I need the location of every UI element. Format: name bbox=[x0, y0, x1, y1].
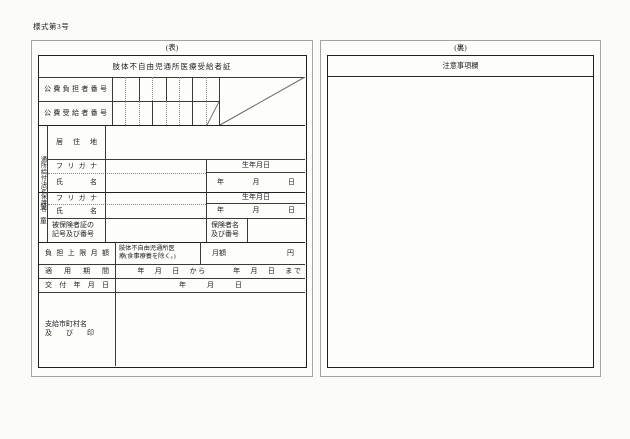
digit-cell bbox=[152, 101, 165, 125]
payer-number-label-text: 公費負担者番号 bbox=[44, 85, 107, 94]
address-label-text: 居住地 bbox=[56, 138, 97, 147]
back-side-label: (裏) bbox=[321, 42, 600, 53]
insurer-label: 保険者名 及び番号 bbox=[206, 218, 248, 242]
child-furigana-input-area bbox=[106, 192, 206, 204]
payer-number-label: 公費負担者番号 bbox=[39, 77, 113, 101]
guardian-furigana-label: フリガナ bbox=[48, 159, 106, 173]
digit-cell bbox=[152, 77, 165, 101]
recipient-number-label-text: 公費受給者番号 bbox=[44, 109, 107, 118]
child-birthdate-ymd-text: 年 月 日 bbox=[217, 206, 295, 215]
slashed-digit-cell bbox=[206, 101, 219, 125]
guardian-name-input-area bbox=[106, 173, 206, 192]
front-side-label: (表) bbox=[32, 42, 312, 53]
child-band-label: 児童 bbox=[39, 192, 48, 242]
recipient-number-label: 公費受給者番号 bbox=[39, 101, 113, 125]
guardian-birthdate-cell: 生年月日 年 月 日 bbox=[206, 159, 305, 192]
copay-monthly-label: 月額 bbox=[212, 249, 226, 258]
guardian-birthdate-ymd: 年 月 日 bbox=[207, 173, 305, 191]
validity-period-label: 適用期間 bbox=[39, 264, 116, 278]
notes-title: 注意事項欄 bbox=[328, 56, 593, 77]
payer-number-digit-cells bbox=[113, 77, 220, 101]
guardian-birthdate-ymd-text: 年 月 日 bbox=[217, 178, 295, 187]
guardian-name-label-text: 氏名 bbox=[56, 178, 97, 187]
digit-cell bbox=[166, 77, 179, 101]
digit-cell bbox=[206, 77, 219, 101]
guardian-birthdate-header: 生年月日 bbox=[207, 159, 305, 173]
municipality-stamp-area bbox=[116, 292, 305, 366]
copay-unit-label: 円 bbox=[287, 249, 294, 258]
copay-limit-label: 負担上限月額 bbox=[39, 242, 116, 264]
guardian-furigana-label-text: フリガナ bbox=[56, 162, 97, 171]
issue-date-label-text: 交付年月日 bbox=[45, 281, 109, 290]
back-panel: (裏) 注意事項欄 bbox=[320, 40, 601, 377]
blank-area-diagonal-line bbox=[220, 77, 305, 125]
issue-date-label: 交付年月日 bbox=[39, 278, 116, 292]
recipient-number-digit-cells bbox=[113, 101, 220, 125]
child-name-label-text: 氏名 bbox=[56, 207, 97, 216]
digit-cell bbox=[125, 101, 138, 125]
notes-body-area bbox=[328, 77, 593, 367]
child-name-input-area bbox=[106, 204, 206, 218]
digit-cell bbox=[166, 101, 179, 125]
digit-cell bbox=[113, 77, 125, 101]
digit-cell bbox=[192, 101, 205, 125]
digit-cell bbox=[179, 101, 192, 125]
document-page: 様式第3号 (表) 肢体不自由児通所医療受給者証 公費負担者番号 bbox=[0, 0, 630, 439]
validity-period-value: 年 月 日 から 年 月 日 まで bbox=[116, 264, 305, 278]
digit-cell bbox=[113, 101, 125, 125]
child-birthdate-header: 生年月日 bbox=[207, 192, 305, 204]
municipality-label: 支給市町村名 及 び 印 bbox=[39, 292, 116, 366]
number-blank-area bbox=[220, 77, 305, 125]
back-notes-box: 注意事項欄 bbox=[327, 55, 594, 368]
insured-card-input-area bbox=[106, 218, 206, 242]
issue-date-value: 年 月 日 bbox=[116, 278, 305, 292]
copay-amount-cell: 月額 円 bbox=[201, 242, 305, 264]
front-panel: (表) 肢体不自由児通所医療受給者証 公費負担者番号 bbox=[31, 40, 313, 377]
cell-slash-line bbox=[207, 101, 219, 125]
digit-cell bbox=[139, 101, 152, 125]
form-number: 様式第3号 bbox=[33, 21, 69, 32]
digit-cell bbox=[179, 77, 192, 101]
digit-cell bbox=[192, 77, 205, 101]
guardian-furigana-input-area bbox=[106, 159, 206, 173]
address-input-area bbox=[106, 125, 305, 159]
validity-period-label-text: 適用期間 bbox=[45, 267, 109, 276]
child-name-label: 氏名 bbox=[48, 204, 106, 218]
front-table: 肢体不自由児通所医療受給者証 公費負担者番号 公費受給者番号 bbox=[38, 55, 307, 368]
copay-limit-note: 肢体不自由児通所医 療(食事療養を除く。) bbox=[116, 242, 201, 264]
child-birthdate-ymd: 年 月 日 bbox=[207, 204, 305, 217]
child-birthdate-cell: 生年月日 年 月 日 bbox=[206, 192, 305, 218]
insured-card-label: 被保険者証の 記号及び番号 bbox=[48, 218, 106, 242]
insurer-input-area bbox=[248, 218, 305, 242]
address-label: 居住地 bbox=[48, 125, 106, 159]
certificate-title: 肢体不自由児通所医療受給者証 bbox=[39, 56, 305, 77]
guardian-name-label: 氏名 bbox=[48, 173, 106, 192]
copay-limit-label-text: 負担上限月額 bbox=[45, 249, 109, 258]
validity-period-value-text: 年 月 日 から 年 月 日 まで bbox=[120, 267, 301, 276]
digit-cell bbox=[125, 77, 138, 101]
digit-cell bbox=[139, 77, 152, 101]
child-furigana-label-text: フリガナ bbox=[56, 194, 97, 203]
child-furigana-label: フリガナ bbox=[48, 192, 106, 204]
